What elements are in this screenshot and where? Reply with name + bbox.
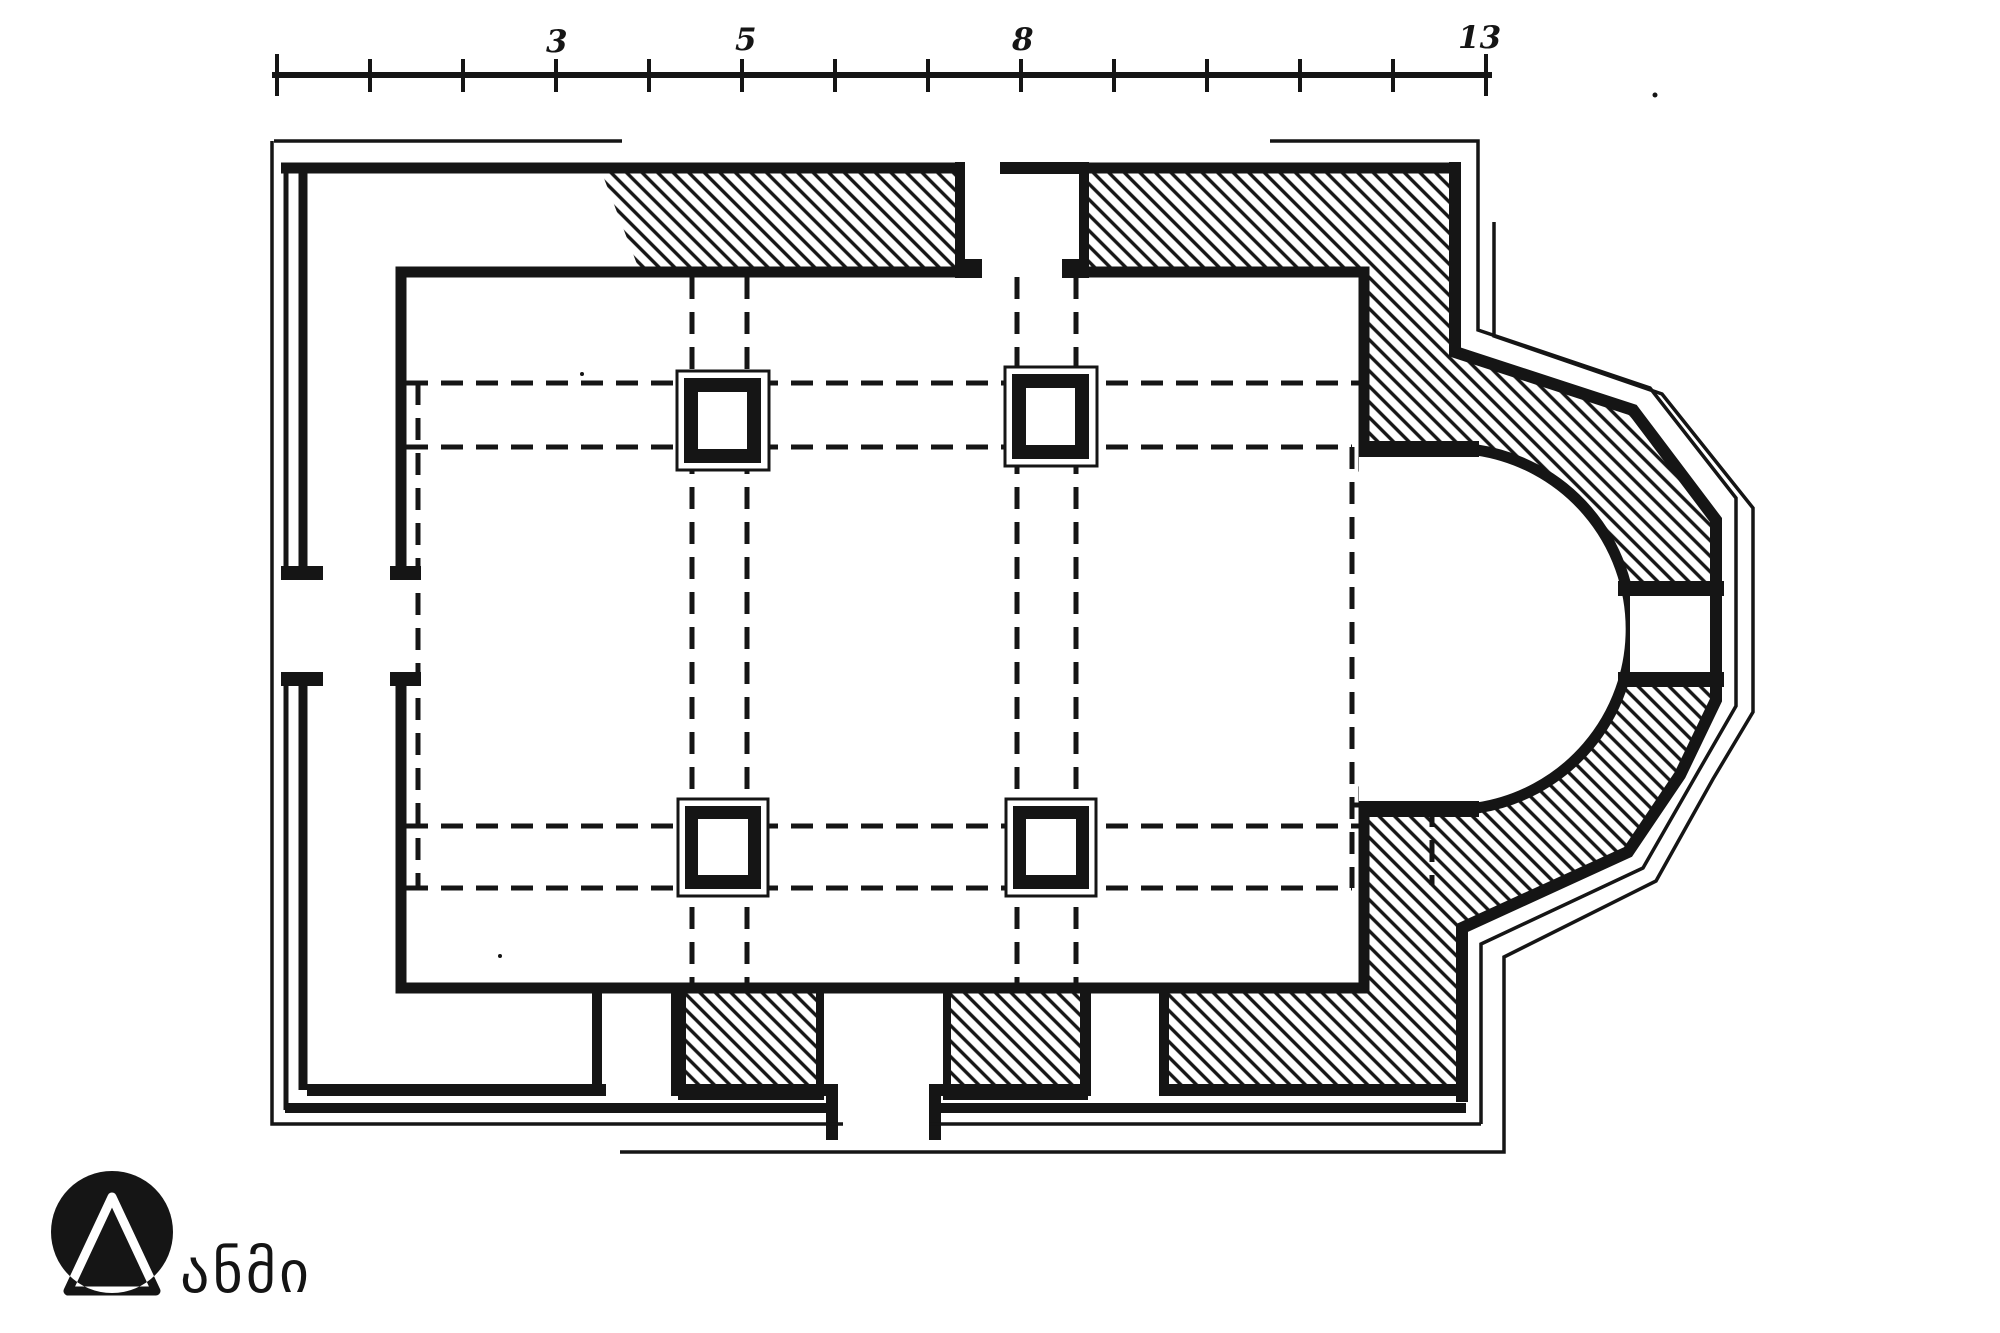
- south-pier-hatch-west: [682, 988, 820, 1096]
- pillar-core: [698, 392, 747, 449]
- north-door-opening: [965, 158, 1079, 278]
- north-door-lintel: [1000, 162, 1079, 174]
- pillar-southeast: [1006, 799, 1096, 896]
- logo: ანმი: [51, 1171, 312, 1306]
- gate-jamb-south: [281, 672, 323, 686]
- north-wall-hatch-left: [600, 168, 955, 272]
- east-window-jamb-north: [1618, 581, 1724, 596]
- pillar-core: [1026, 819, 1076, 875]
- pillar-core: [1026, 388, 1075, 445]
- north-door-stub-west: [965, 259, 982, 278]
- artifact-dot: [498, 954, 502, 958]
- scale-bar: 3 5 8 13: [272, 20, 1501, 96]
- south-pier-hatch-east: [947, 988, 1084, 1096]
- apse-shoulder-north: [1359, 441, 1479, 457]
- pillar-northwest: [677, 371, 769, 470]
- north-door-stub-east: [1062, 259, 1079, 278]
- scanned-plan-page: 3 5 8 13 ანმი: [0, 0, 2000, 1333]
- artifact-dot: [1653, 93, 1658, 98]
- scale-label-5: 5: [735, 22, 757, 58]
- south-door-hook-west: [826, 1084, 838, 1140]
- naos: [401, 272, 1364, 988]
- east-window-jamb-south: [1618, 672, 1724, 687]
- pillar-core: [698, 819, 748, 875]
- pillar-southwest: [678, 799, 768, 896]
- south-door-hook-east: [929, 1084, 941, 1140]
- west-door-opening: [390, 580, 415, 672]
- scale-label-8: 8: [1011, 22, 1034, 58]
- west-enclosure: [281, 165, 323, 1110]
- pillar-northeast: [1005, 367, 1097, 466]
- artifact-dot: [580, 372, 584, 376]
- logo-circle: [51, 1171, 173, 1293]
- apse-shoulder-south: [1359, 801, 1479, 817]
- floor-plan-drawing: 3 5 8 13 ანმი: [0, 0, 2000, 1333]
- scale-label-13: 13: [1458, 20, 1501, 56]
- gate-jamb-north: [281, 566, 323, 580]
- east-window-opening: [1630, 594, 1724, 674]
- logo-wordmark: ანმი: [180, 1238, 312, 1306]
- naos-interior: [401, 272, 1364, 988]
- north-door: [960, 158, 1084, 278]
- scale-label-3: 3: [546, 24, 568, 60]
